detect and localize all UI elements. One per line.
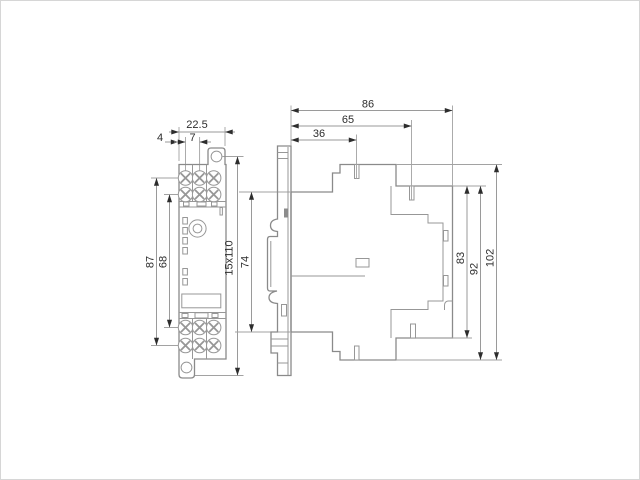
mounting-hole-top: [211, 151, 222, 162]
side-body-details: [291, 165, 453, 361]
dim-height-terminal-label: 83: [455, 252, 467, 264]
screw-slot-lower-right: [411, 324, 416, 338]
dim-depth-total: 86: [291, 99, 453, 111]
mounting-hole-bottom: [181, 362, 192, 373]
dim-height-total: 102: [485, 165, 497, 361]
dimension-drawing-page: 22.5 4 7 87 68 15x110: [0, 0, 640, 480]
center-slot: [356, 259, 369, 268]
dim-terminal-pitch: 7: [174, 132, 211, 144]
face-slot-upper: [444, 231, 449, 242]
dim-edge-offset-label: 4: [157, 132, 163, 144]
dim-span-inner-label: 68: [158, 256, 170, 268]
dim-depth-upper-screw-label: 65: [342, 114, 354, 126]
dim-span-outer-label: 87: [145, 256, 157, 268]
label-window: [182, 294, 221, 308]
dim-housing-height: 74: [240, 192, 252, 332]
dim-span-inner: 68: [158, 195, 170, 328]
dim-depth-upper-screw: 65: [291, 114, 412, 126]
dim-din-rail-label: 15x110: [224, 240, 236, 275]
face-slot-lower: [444, 276, 449, 287]
dim-depth-lower-screw-label: 36: [313, 128, 325, 140]
latch-marker: [284, 209, 288, 218]
screw-terminals-bottom: [178, 320, 221, 352]
side-body-outline: [291, 165, 453, 361]
indicator-slot: [220, 208, 222, 216]
side-view: [235, 146, 453, 376]
dim-height-body: 92: [469, 186, 481, 360]
front-dimensions: 22.5 4 7 87 68 15x110: [145, 119, 238, 376]
dim-depth-lower-screw: 36: [291, 128, 357, 140]
dim-span-outer: 87: [145, 178, 157, 346]
mounting-plate: [268, 146, 292, 376]
dim-terminal-pitch-label: 7: [189, 132, 195, 144]
screw-terminals-top: [178, 171, 221, 202]
latch-slot: [282, 305, 287, 317]
dimension-drawing: 22.5 4 7 87 68 15x110: [1, 1, 640, 480]
vent-slots: [183, 218, 188, 286]
dim-height-body-label: 92: [469, 263, 481, 275]
screw-slot-lower-left: [355, 346, 360, 360]
dim-height-terminal: 83: [455, 186, 467, 338]
dim-height-total-label: 102: [485, 249, 497, 267]
dim-front-width-label: 22.5: [186, 119, 207, 131]
dim-depth-total-label: 86: [362, 99, 374, 111]
dim-housing-height-label: 74: [240, 256, 252, 268]
side-dimensions: 86 65 36 74 83 92 102: [240, 99, 503, 361]
front-face-details: [182, 208, 223, 308]
